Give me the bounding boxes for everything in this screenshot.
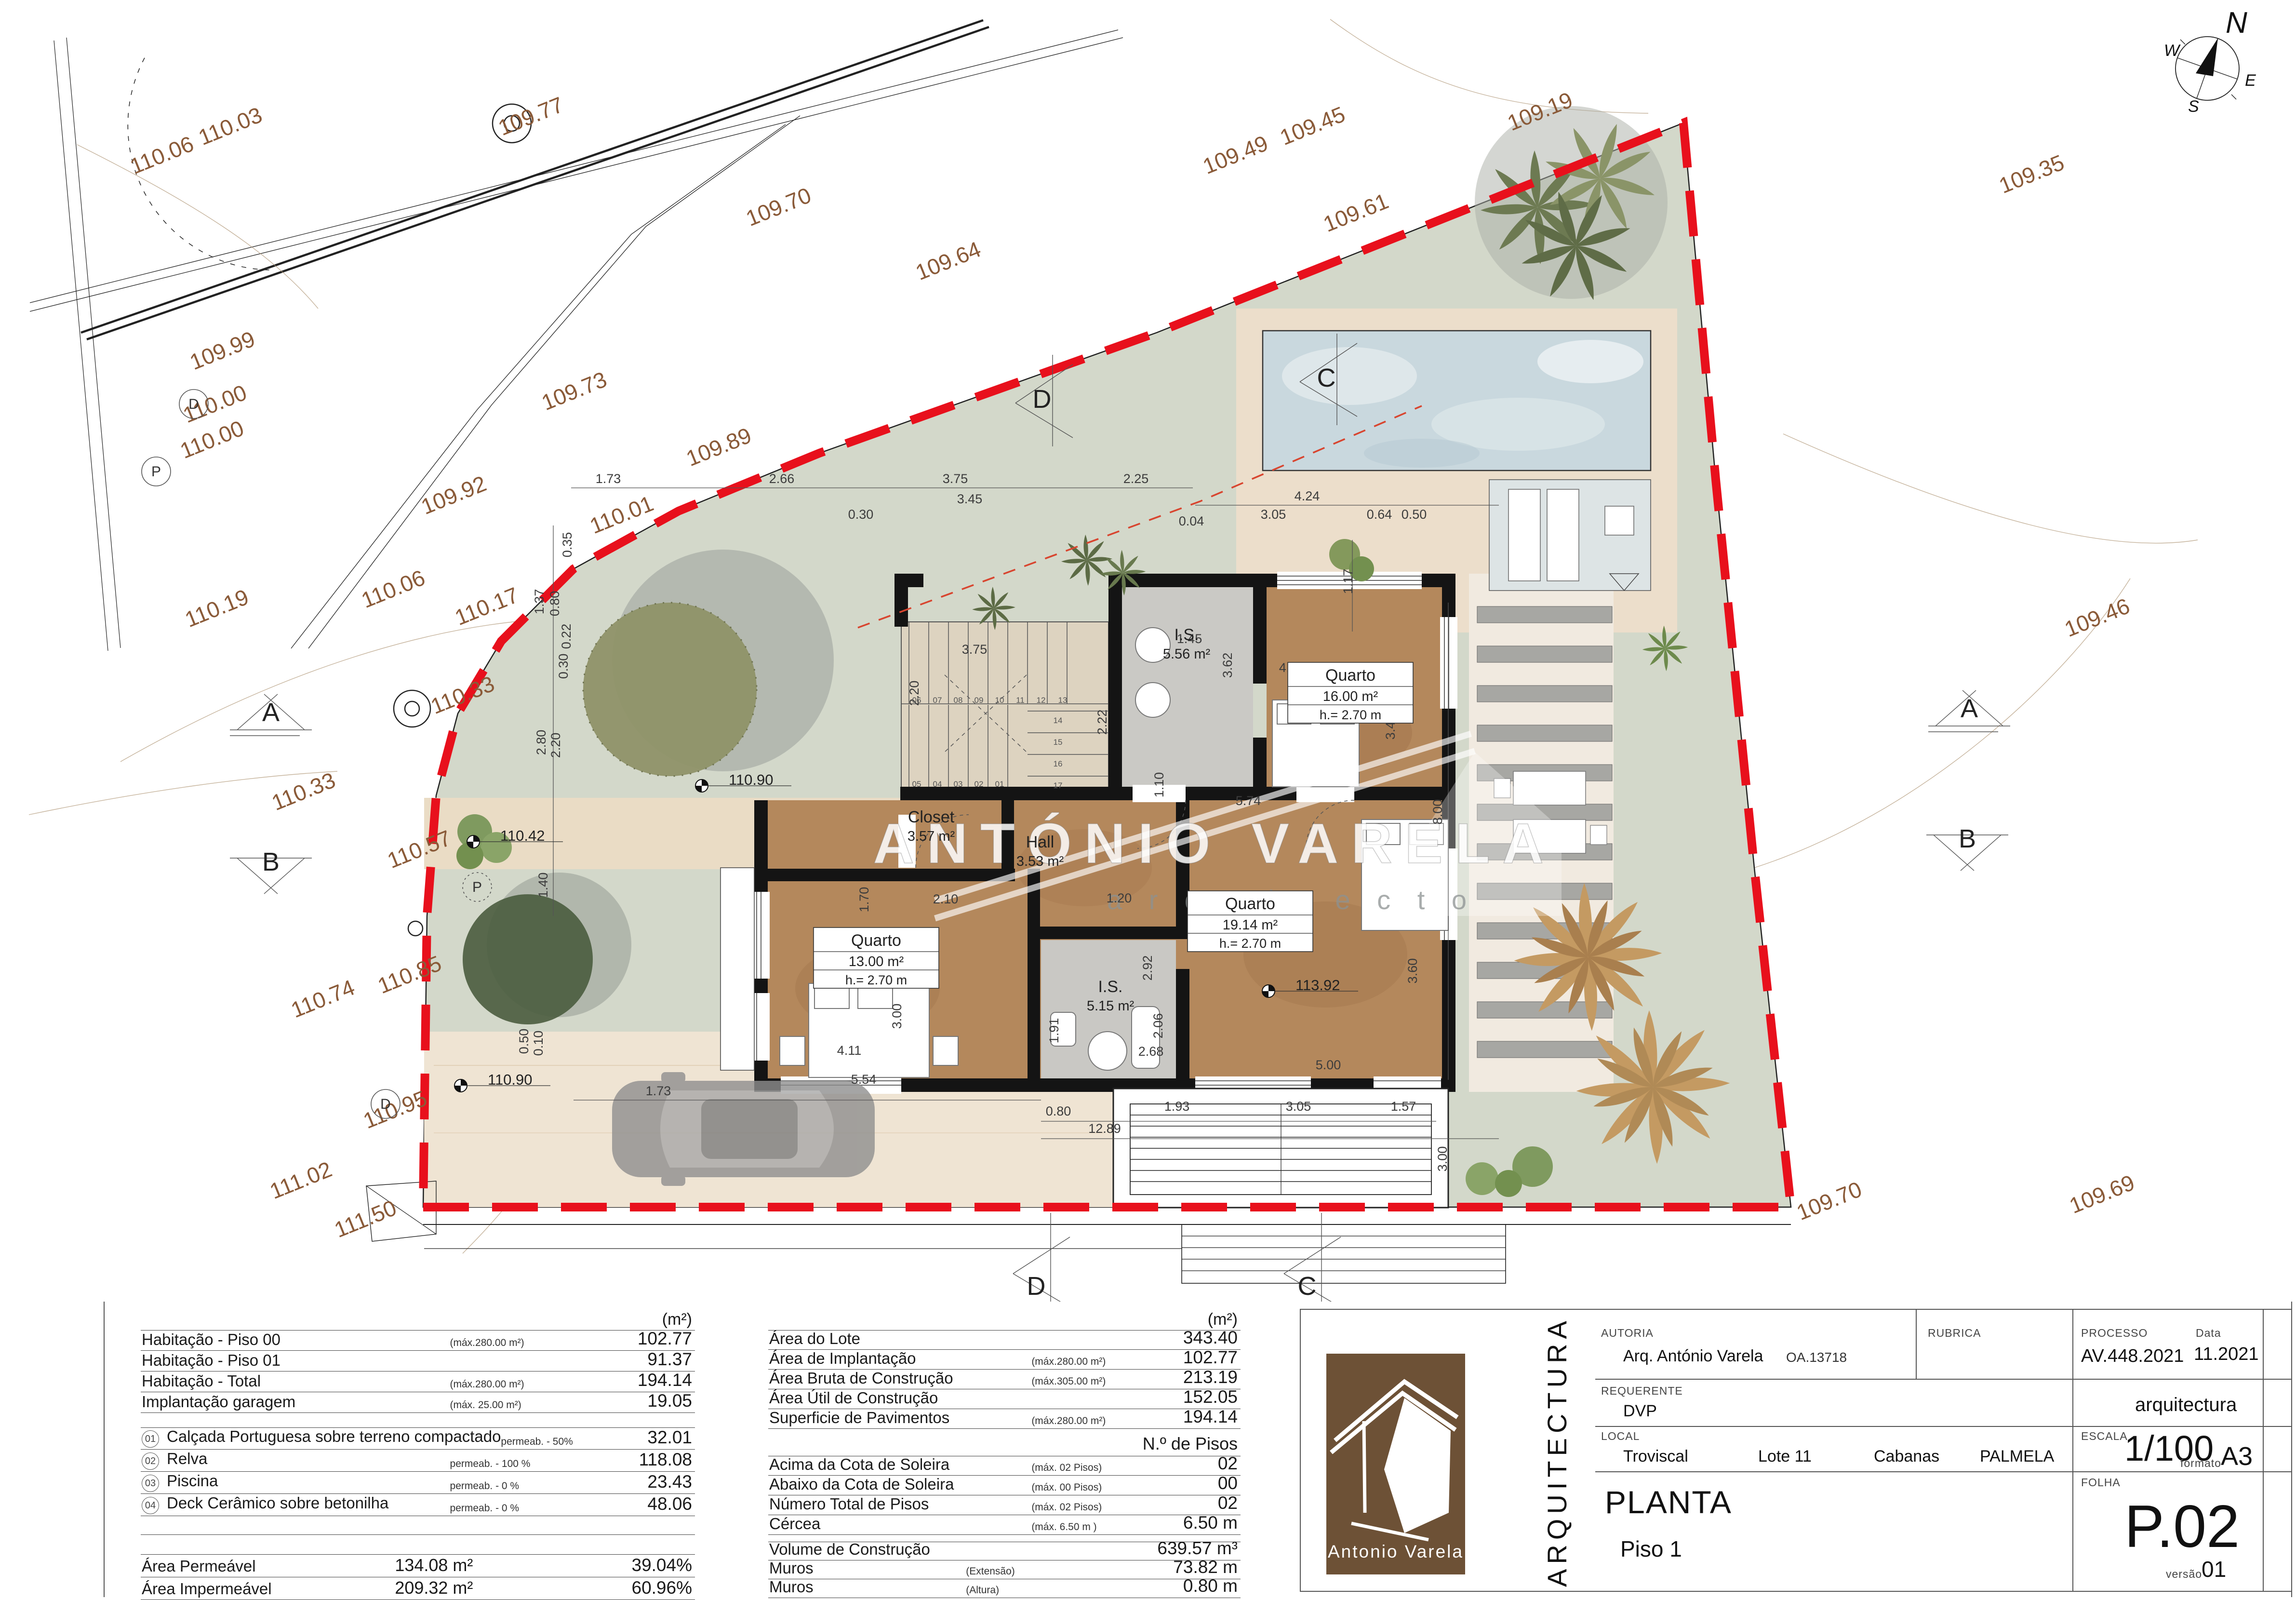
row-note: (Extensão) [966, 1566, 1069, 1577]
row-label: Superficie de Pavimentos [769, 1409, 1031, 1427]
table-row: Superficie de Pavimentos(máx.280.00 m²)1… [768, 1409, 1241, 1429]
table-row: Acima da Cota de Soleira(máx. 02 Pisos)0… [768, 1456, 1241, 1476]
rubrica-label: RUBRICA [1928, 1327, 1981, 1340]
row-label: 01Calçada Portuguesa sobre terreno compa… [142, 1427, 501, 1448]
row-note: (máx. 02 Pisos) [1031, 1502, 1135, 1513]
row-label: Habitação - Piso 01 [142, 1351, 450, 1370]
table-row: Abaixo da Cota de Soleira(máx. 00 Pisos)… [768, 1476, 1241, 1495]
autoria-label: AUTORIA [1601, 1327, 1654, 1340]
row-note: permeab. - 50% [501, 1436, 605, 1448]
table-row: Área Bruta de Construção(máx.305.00 m²)2… [768, 1370, 1241, 1389]
site-plan: ANTÓNIO VARELA a r q u i t e c t o N W E… [0, 0, 2296, 1302]
local-label: LOCAL [1601, 1430, 1640, 1443]
dimension-label: 3.00 [890, 1004, 904, 1029]
stair-number: 12 [1037, 696, 1046, 705]
row-label: 03Piscina [142, 1472, 450, 1492]
row-label: Área Útil de Construção [769, 1389, 1031, 1407]
dimension-label: 1.57 [1391, 1099, 1416, 1114]
row-value: 91.37 [571, 1349, 692, 1370]
table-row: Cércea(máx. 6.50 m )6.50 m [768, 1515, 1241, 1535]
local-lot: Lote 11 [1758, 1447, 1812, 1466]
circled-mark-letter: D [380, 1096, 391, 1112]
material-row: 01Calçada Portuguesa sobre terreno compa… [141, 1427, 695, 1450]
dimension-label: 3.00 [1435, 1146, 1450, 1172]
room-label: Closet3.57 m² [908, 808, 955, 844]
stair-number: 11 [1016, 696, 1025, 705]
dimension-label: 3.05 [1286, 1099, 1311, 1114]
dimension-label: 4.24 [1295, 489, 1320, 503]
spacer [141, 1535, 695, 1555]
room-height: h.= 2.70 m [1320, 708, 1381, 722]
dimension-label: 3.62 [1220, 653, 1235, 678]
room-height: h.= 2.70 m [1219, 936, 1281, 951]
dimension-label: 1.10 [1152, 772, 1166, 798]
dimension-label: 0.30 [556, 654, 571, 679]
material-row: 02Relvapermeab. - 100 %118.08 [141, 1450, 695, 1472]
stair-number: 10 [995, 696, 1004, 705]
dimension-label: 0.50 [517, 1029, 531, 1054]
row-label: Habitação - Piso 00 [142, 1331, 450, 1349]
circled-mark-letter: D [188, 396, 199, 412]
autoria-number: OA.13718 [1786, 1350, 1847, 1365]
architectural-sheet: { "document": { "type_label": "PLANTA", … [0, 0, 2296, 1597]
processo-label: PROCESSO [2081, 1327, 2148, 1340]
dimension-label: 2.80 [534, 730, 548, 755]
table-row: Habitação - Piso 0191.37 [141, 1351, 695, 1371]
row-label: Habitação - Total [142, 1372, 450, 1390]
dimension-label: 5.00 [1316, 1058, 1341, 1072]
table-row: Área do Lote343.40 [768, 1330, 1241, 1350]
dimension-label: 2.68 [1138, 1044, 1164, 1059]
dimension-label: 0.10 [531, 1031, 546, 1056]
material-number: 01 [142, 1430, 159, 1448]
row-value: 23.43 [554, 1472, 692, 1492]
compass-east-label: E [2245, 71, 2256, 90]
requerente-value: DVP [1623, 1402, 1657, 1421]
table-row: Implantação garagem(máx. 25.00 m²)19.05 [141, 1392, 695, 1413]
row-label: Área Impermeável [142, 1580, 395, 1598]
row-mid: 209.32 m² [395, 1578, 560, 1598]
row-value: 102.77 [1135, 1347, 1238, 1368]
row-note: (máx. 25.00 m²) [450, 1399, 571, 1411]
room-area: 5.56 m² [1163, 646, 1211, 662]
total-row: Área Permeável134.08 m²39.04% [141, 1555, 695, 1577]
row-value: 6.50 m [1135, 1513, 1238, 1533]
lot-table: (m²)Área do Lote343.40Área de Implantaçã… [768, 1307, 1241, 1598]
local-area: Cabanas [1874, 1447, 1939, 1466]
material-number: 04 [142, 1497, 159, 1514]
material-number: 03 [142, 1475, 159, 1492]
lot-unit-header: (m²) [768, 1307, 1241, 1330]
row-value: 639.57 m³ [1069, 1538, 1238, 1559]
row-note: (máx.280.00 m²) [1031, 1356, 1135, 1368]
dimension-label: 1.73 [646, 1084, 671, 1098]
folha-label: FOLHA [2081, 1476, 2121, 1489]
spot-elevation-value: 110.90 [488, 1071, 533, 1088]
row-label: Muros [769, 1578, 966, 1596]
row-value: 48.06 [554, 1494, 692, 1514]
row-label: Muros [769, 1559, 966, 1577]
data-value: 11.2021 [2194, 1344, 2259, 1365]
row-value: 194.14 [571, 1370, 692, 1390]
room-area: 5.15 m² [1087, 998, 1135, 1014]
table-row: Habitação - Total(máx.280.00 m²)194.14 [141, 1371, 695, 1392]
logo-name: Antonio Varela [1326, 1542, 1465, 1562]
dimension-label: 3.05 [1261, 507, 1286, 522]
row-note: (máx.280.00 m²) [450, 1379, 571, 1390]
dimension-label: 1.17 [1341, 569, 1355, 594]
versao-value: 01 [2202, 1556, 2226, 1582]
dimension-label: 1.20 [1107, 891, 1132, 905]
pisos-header: N.º de Pisos [768, 1429, 1241, 1456]
dimension-label: 5.74 [1236, 793, 1261, 808]
circled-mark-letter: P [472, 879, 482, 895]
dimension-label: 12.89 [1088, 1121, 1121, 1136]
stair-number: 15 [1054, 738, 1063, 747]
stair-number: 03 [954, 780, 963, 789]
section-marker-letter: C [1317, 363, 1336, 392]
room-area: 3.57 m² [908, 829, 955, 844]
dimension-label: 0.80 [1046, 1104, 1071, 1118]
dimension-label: 1.73 [596, 471, 621, 486]
material-number: 02 [142, 1452, 159, 1470]
stair-number: 02 [974, 780, 984, 789]
discipline-vertical: ARQUITECTURA [1541, 1336, 1573, 1587]
dimension-label: 0.64 [1367, 507, 1392, 522]
section-marker-letter: B [262, 847, 280, 876]
row-label: Número Total de Pisos [769, 1495, 1031, 1513]
row-value: 02 [1135, 1453, 1238, 1474]
stair-number: 07 [933, 696, 942, 705]
room-area: 13.00 m² [849, 954, 904, 969]
row-mid: 134.08 m² [395, 1555, 560, 1575]
areas-table: (m²)Habitação - Piso 00(máx.280.00 m²)10… [141, 1307, 695, 1600]
dimension-label: 0.30 [848, 507, 874, 522]
row-note: permeab. - 100 % [450, 1458, 555, 1470]
row-value: 118.08 [554, 1450, 692, 1470]
spot-elevation-value: 113.92 [1295, 977, 1340, 994]
table-row: Muros(Altura)0.80 m [768, 1579, 1241, 1598]
section-marker-letter: D [1033, 385, 1052, 414]
row-note: (máx.305.00 m²) [1031, 1376, 1135, 1387]
spacer [141, 1516, 695, 1535]
row-note: permeab. - 0 % [450, 1503, 555, 1514]
row-value: 39.04% [560, 1555, 692, 1575]
row-label: Abaixo da Cota de Soleira [769, 1475, 1031, 1493]
row-label: Área do Lote [769, 1330, 1031, 1348]
areas-unit-header: (m²) [141, 1307, 695, 1330]
dimension-label: 3.45 [957, 492, 983, 506]
row-value: 19.05 [571, 1391, 692, 1411]
room-name: Quarto [1225, 895, 1275, 913]
dimension-label: 0.22 [559, 624, 574, 649]
row-value: 343.40 [1135, 1328, 1238, 1348]
section-marker-letter: C [1298, 1272, 1317, 1301]
dimension-label: 1.37 [532, 589, 547, 615]
dimension-label: 2.92 [1140, 955, 1155, 981]
spot-elevation-value: 110.42 [500, 827, 545, 844]
row-value: 0.80 m [1069, 1576, 1238, 1596]
room-name: Closet [908, 808, 955, 826]
stair-number: 04 [933, 780, 942, 789]
row-value: 32.01 [605, 1427, 692, 1448]
processo-value: AV.448.2021 [2081, 1346, 2184, 1367]
local-municipality: PALMELA [1980, 1447, 2054, 1466]
compass-south-label: S [2188, 97, 2199, 116]
row-label: Cércea [769, 1515, 1031, 1533]
pool-lounger-deck [1489, 480, 1651, 591]
dimension-label: 5.54 [851, 1072, 877, 1087]
dimension-label: 2.20 [548, 733, 563, 758]
dimension-label: 3.75 [962, 642, 988, 657]
row-label: Área Bruta de Construção [769, 1369, 1031, 1387]
formato-value: A3 [2221, 1441, 2253, 1471]
dimension-label: 2.06 [1151, 1013, 1165, 1039]
dimension-label: 2.22 [1095, 710, 1109, 735]
stair-number: 06 [912, 696, 921, 705]
row-label: Implantação garagem [142, 1393, 450, 1411]
row-label: 04Deck Cerâmico sobre betonilha [142, 1494, 450, 1514]
data-label: Data [2196, 1327, 2221, 1340]
dimension-label: 0.50 [1402, 507, 1427, 522]
row-value: 213.19 [1135, 1367, 1238, 1387]
room-name: I.S. [1098, 978, 1122, 996]
dimension-label: 1.91 [1047, 1018, 1061, 1044]
row-label: Área de Implantação [769, 1349, 1031, 1368]
table-row: Área Útil de Construção152.05 [768, 1389, 1241, 1409]
dimension-label: 1.70 [857, 887, 871, 913]
material-row: 04Deck Cerâmico sobre betonilhapermeab. … [141, 1494, 695, 1516]
stair-number: 16 [1054, 759, 1063, 768]
total-row: Área Impermeável209.32 m²60.96% [141, 1577, 695, 1600]
row-note: (máx.280.00 m²) [1031, 1415, 1135, 1427]
material-row: 03Piscinapermeab. - 0 %23.43 [141, 1472, 695, 1494]
formato-label: formato [2180, 1457, 2221, 1470]
versao-label: versão [2166, 1568, 2202, 1581]
dimension-label: 1.40 [536, 873, 550, 898]
dimension-label: 1.93 [1164, 1099, 1190, 1114]
stair-number: 08 [954, 696, 963, 705]
row-note: permeab. - 0 % [450, 1480, 555, 1492]
stair-number: 09 [974, 696, 984, 705]
dimension-label: 4.11 [837, 1043, 862, 1058]
folha-value: P.02 [2124, 1492, 2240, 1561]
dimension-label: 3.75 [943, 471, 968, 486]
local-place: Troviscal [1623, 1447, 1688, 1466]
stair-number: 01 [995, 780, 1004, 789]
watermark-name: ANTÓNIO VARELA [873, 812, 1556, 875]
table-row: Área de Implantação(máx.280.00 m²)102.77 [768, 1350, 1241, 1370]
dimension-label: 3.60 [1405, 958, 1420, 984]
room-name: Hall [1026, 833, 1055, 851]
drawing-subtitle: Piso 1 [1620, 1536, 1682, 1562]
dimension-label: 2.66 [769, 471, 795, 486]
room-label-boxed: Quarto19.14 m²h.= 2.70 m [1188, 891, 1313, 952]
row-value: 60.96% [560, 1578, 692, 1598]
dimension-label: 0.80 [547, 591, 562, 617]
escala-label: ESCALA [2081, 1430, 2128, 1443]
dimension-label: 0.04 [1179, 514, 1204, 528]
architect-logo: Antonio Varela [1326, 1354, 1465, 1574]
room-area: 16.00 m² [1323, 689, 1378, 704]
room-label-boxed: Quarto13.00 m²h.= 2.70 m [814, 928, 939, 988]
drawing-title: PLANTA [1605, 1484, 1732, 1520]
room-area: 3.53 m² [1016, 854, 1064, 869]
dimension-label: 2.10 [933, 892, 959, 906]
room-name: I.S. [1174, 626, 1199, 644]
table-row: Número Total de Pisos(máx. 02 Pisos)02 [768, 1495, 1241, 1515]
section-marker-letter: A [262, 698, 280, 727]
row-label: Volume de Construção [769, 1540, 966, 1559]
row-note: (máx. 6.50 m ) [1031, 1521, 1135, 1533]
room-name: Quarto [1325, 666, 1375, 685]
table-row: Habitação - Piso 00(máx.280.00 m²)102.77 [141, 1330, 695, 1351]
row-note: (máx.280.00 m²) [450, 1337, 571, 1349]
section-marker-letter: B [1959, 824, 1976, 853]
row-value: 194.14 [1135, 1407, 1238, 1427]
section-marker-letter: D [1027, 1272, 1046, 1301]
spacer [141, 1413, 695, 1427]
stair-number: 14 [1054, 716, 1063, 725]
row-value: 00 [1135, 1473, 1238, 1493]
dimension-label: 8.00 [1430, 799, 1445, 825]
stair-number: 17 [1054, 781, 1063, 790]
specialty: arquitectura [2135, 1394, 2237, 1416]
section-marker-letter: A [1961, 694, 1978, 723]
row-note: (máx. 00 Pisos) [1031, 1482, 1135, 1493]
compass-west-label: W [2164, 41, 2181, 60]
dimension-label: 2.25 [1123, 471, 1149, 486]
row-value: 152.05 [1135, 1387, 1238, 1407]
room-name: Quarto [851, 931, 901, 950]
row-label: 02Relva [142, 1450, 450, 1470]
compass-north-label: N [2226, 6, 2247, 40]
row-label: Acima da Cota de Soleira [769, 1455, 1031, 1474]
row-label: Área Permeável [142, 1557, 395, 1575]
autoria-value: Arq. António Varela [1623, 1347, 1763, 1366]
spot-elevation-value: 110.90 [729, 771, 774, 788]
row-value: 02 [1135, 1493, 1238, 1513]
row-value: 102.77 [571, 1329, 692, 1349]
row-value: 73.82 m [1069, 1557, 1238, 1577]
dimension-label: 0.35 [560, 532, 574, 558]
requerente-label: REQUERENTE [1601, 1385, 1683, 1398]
row-note: (máx. 02 Pisos) [1031, 1462, 1135, 1474]
room-area: 19.14 m² [1223, 917, 1278, 933]
stair-number: 05 [912, 780, 921, 789]
circled-mark-letter: P [151, 464, 161, 480]
row-note: (Altura) [966, 1585, 1069, 1596]
room-height: h.= 2.70 m [845, 973, 907, 987]
room-label-boxed: Quarto16.00 m²h.= 2.70 m [1288, 662, 1413, 723]
stair-number: 13 [1058, 696, 1068, 705]
